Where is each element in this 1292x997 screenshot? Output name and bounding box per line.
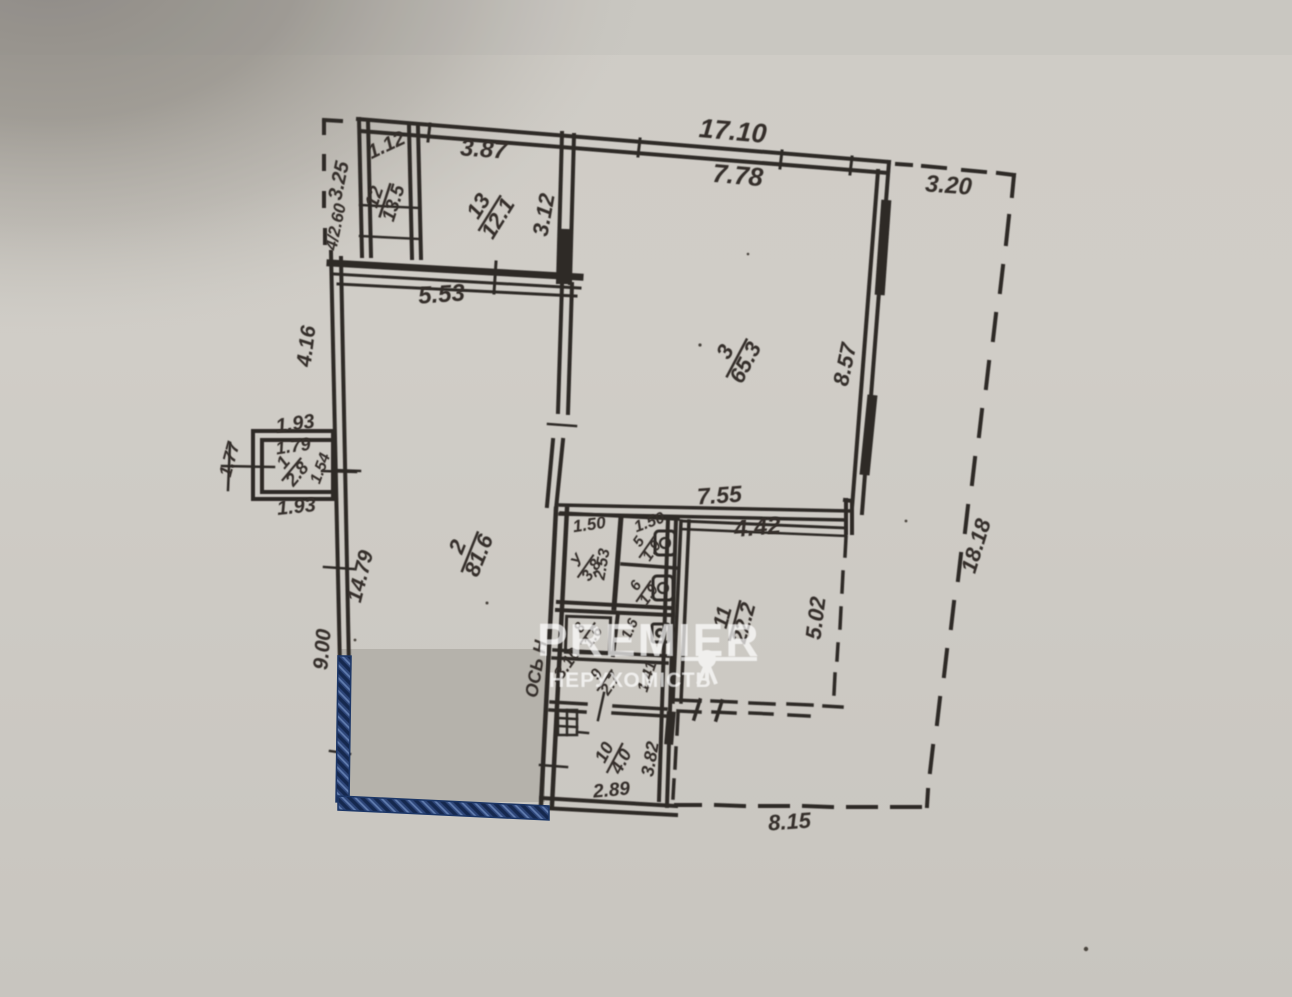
svg-text:4.42: 4.42	[732, 512, 783, 543]
svg-text:3.87: 3.87	[459, 134, 509, 164]
svg-text:17.10: 17.10	[698, 113, 768, 149]
svg-text:7.78: 7.78	[711, 158, 765, 192]
svg-text:3.20: 3.20	[924, 170, 973, 200]
svg-text:5.53: 5.53	[417, 279, 466, 309]
svg-text:9.00: 9.00	[309, 628, 336, 671]
svg-text:1.93: 1.93	[276, 494, 317, 520]
svg-text:7.55: 7.55	[696, 480, 744, 509]
svg-text:2.89: 2.89	[591, 778, 631, 802]
svg-text:8.15: 8.15	[767, 808, 812, 836]
svg-text:НЕРУХОМІСТЬ: НЕРУХОМІСТЬ	[549, 669, 712, 692]
svg-text:5.02: 5.02	[801, 595, 831, 641]
